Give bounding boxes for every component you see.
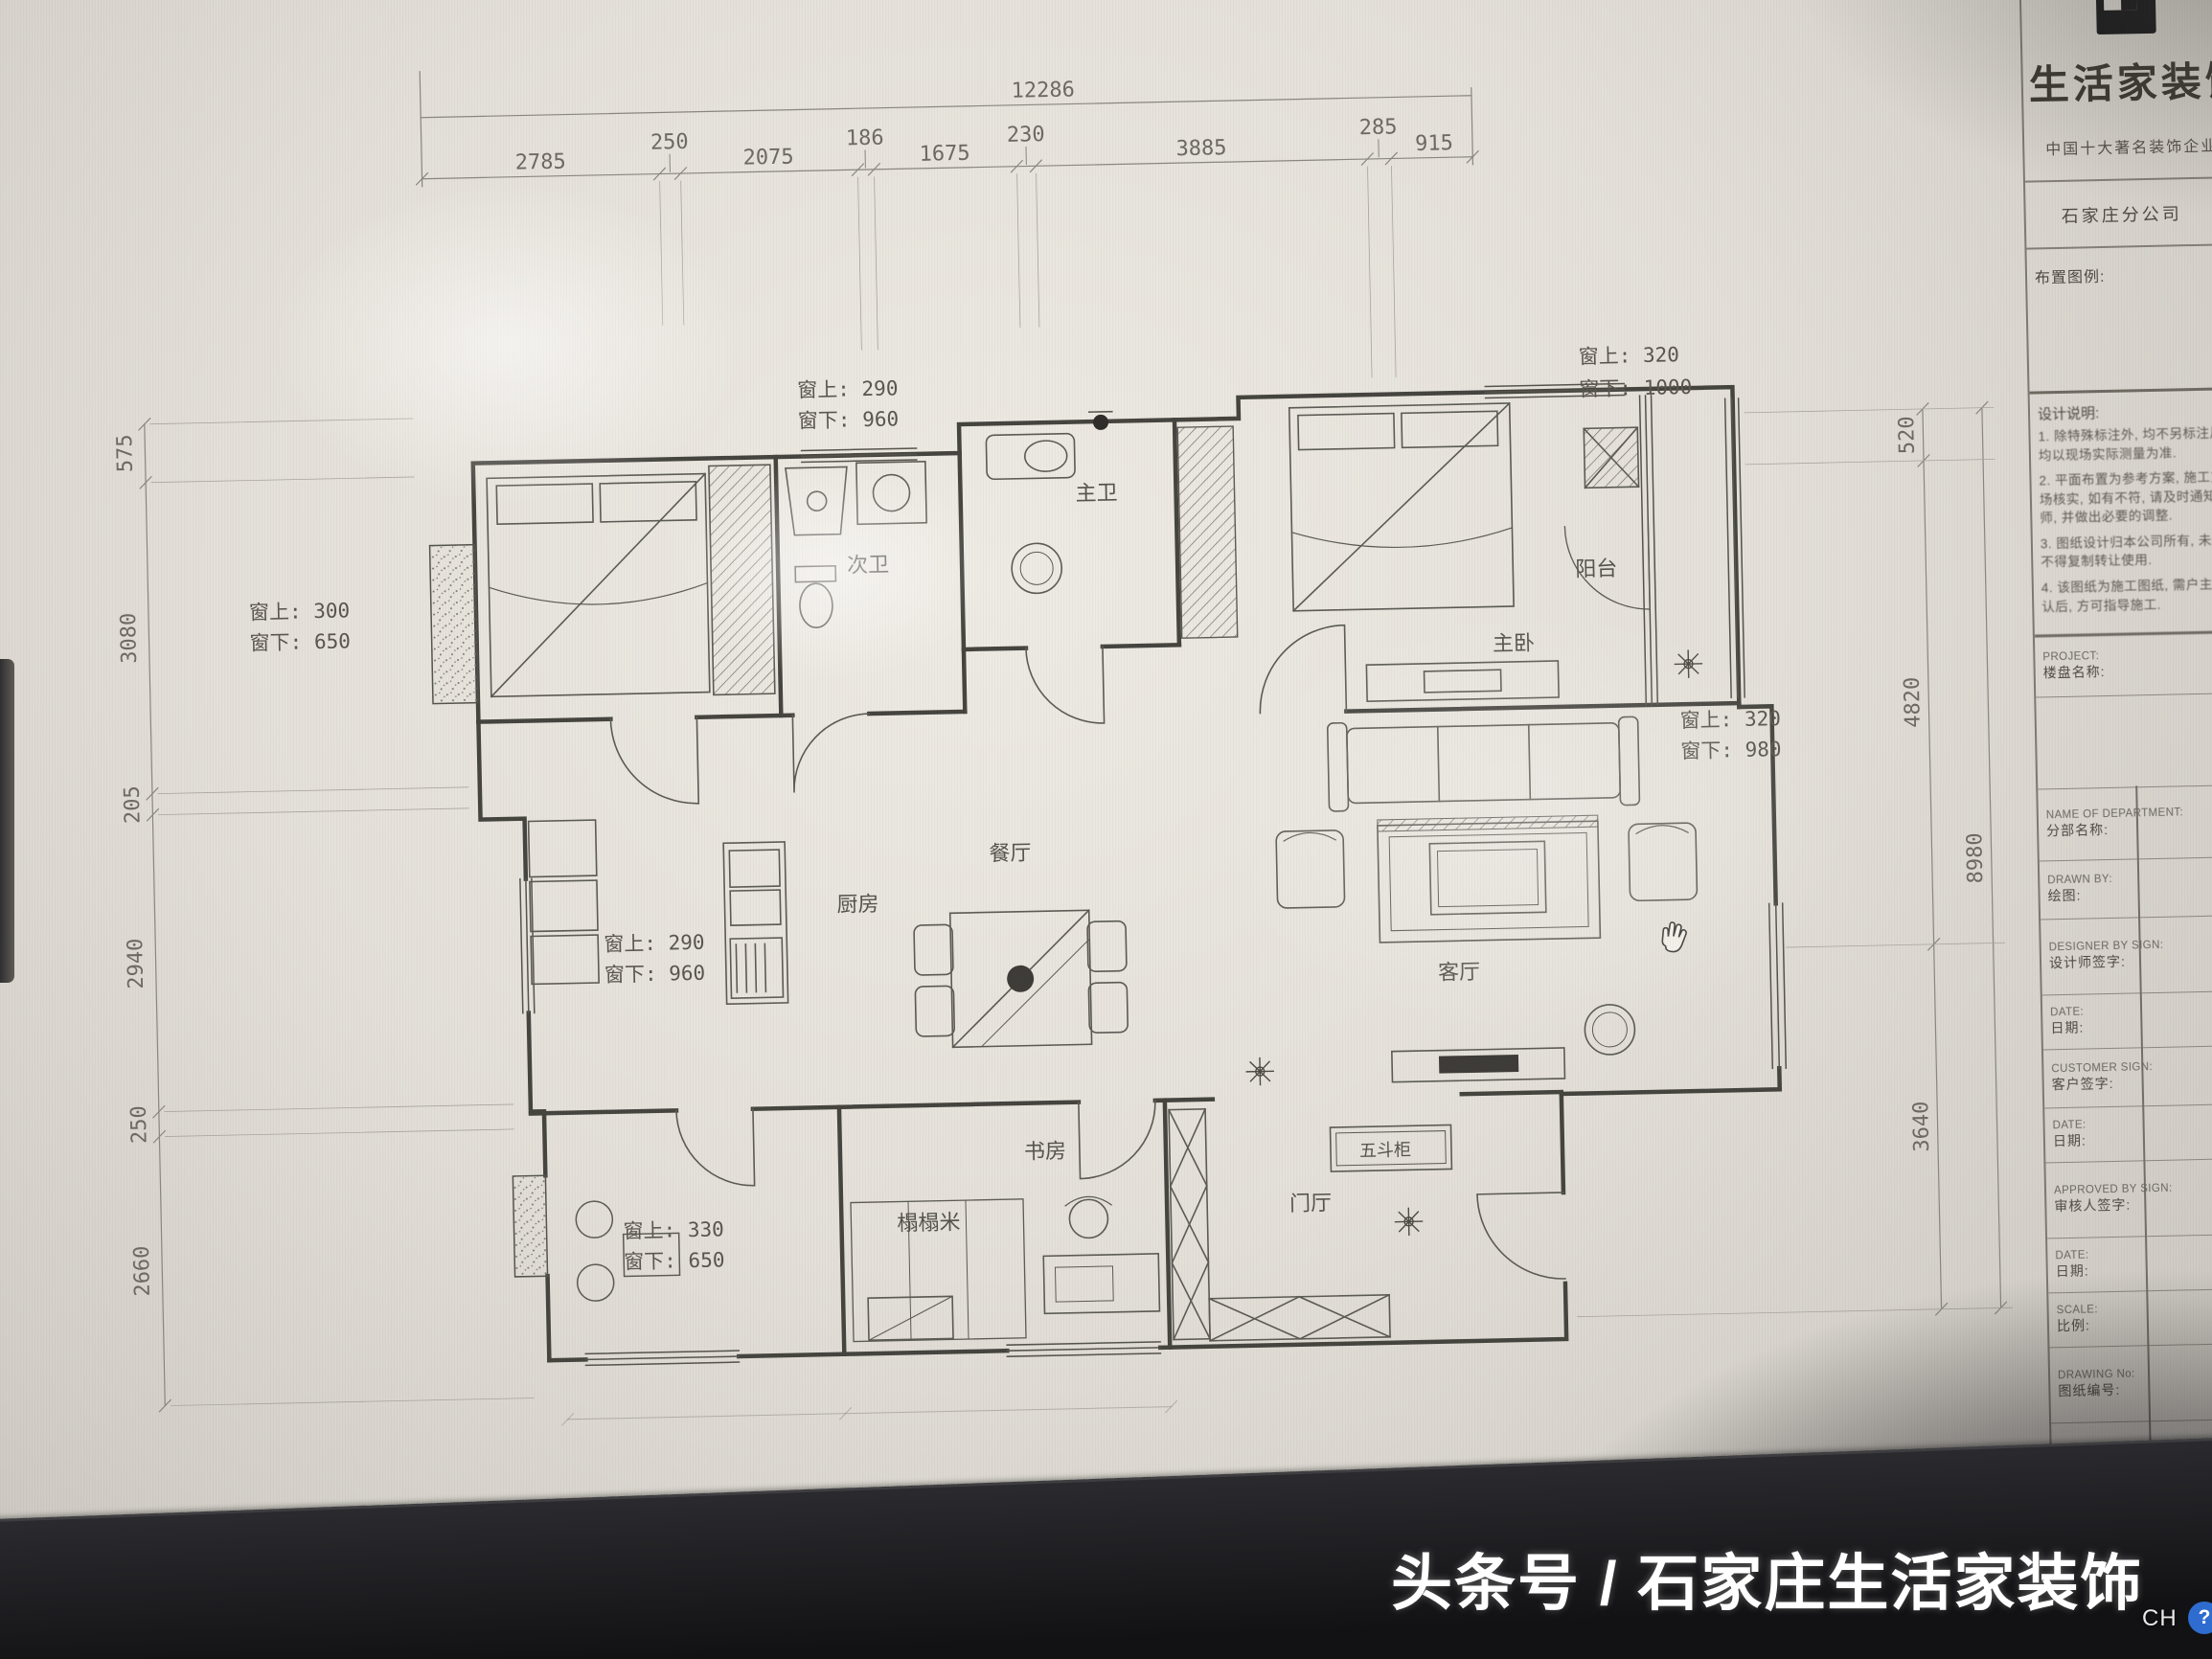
row-department: NAME OF DEPARTMENT: 分部名称: [2038,785,2212,862]
title-block: 生活家装饰 中国十大著名装饰企业 石家庄分公司 布置图例: 设计说明: 1. 除… [2018,0,2212,1579]
company-name: 生活家装饰 [2022,47,2212,122]
left-edge-object [0,659,14,983]
row-customer-sign: CUSTOMER SIGN: 客户签字: [2043,1046,2212,1109]
legend-label: 布置图例: [2026,245,2212,395]
branch-name: 石家庄分公司 [2025,178,2212,250]
row-approved-sign: APPROVED BY SIGN: 审核人签字: [2045,1158,2212,1239]
design-note: 3. 图纸设计归本公司所有, 未经许可, 不得复制转让使用. [2041,530,2212,572]
scene-tilt-layer: 生活家装饰 中国十大著名装饰企业 石家庄分公司 布置图例: 设计说明: 1. 除… [0,0,2212,1659]
row-empty [2036,693,2212,790]
company-logo [2020,0,2212,52]
design-notes-title: 设计说明: [2038,399,2212,424]
row-drawn-by: DRAWN BY: 绘图: [2040,857,2212,920]
design-note: 1. 除特殊标注外, 均不另标注尺寸, 均以现场实际测量为准. [2038,423,2212,466]
watermark-text: 头条号 / 石家庄生活家装饰 [1391,1534,2212,1623]
design-note: 2. 平面布置为参考方案, 施工方需现场核实, 如有不符, 请及时通知设计师, … [2039,467,2212,528]
row-project: PROJECT: 楼盘名称: [2035,633,2212,698]
title-block-rows: PROJECT: 楼盘名称: NAME OF DEPARTMENT: 分部名称:… [2035,633,2212,1424]
row-designer-sign: DESIGNER BY SIGN: 设计师签字: [2041,916,2212,996]
photo-of-monitor: 12286 2785 250 2075 186 1675 230 3885 28… [0,0,2212,1659]
row-scale: SCALE: 比例: [2048,1288,2212,1348]
row-date: DATE: 日期: [2042,991,2212,1051]
design-note: 4. 该图纸为施工图纸, 需户主签字确认后, 方可指导施工. [2041,575,2212,617]
company-tagline: 中国十大著名装饰企业 [2024,117,2212,183]
osd-channel-label: CH [2142,1605,2178,1632]
design-notes: 设计说明: 1. 除特殊标注外, 均不另标注尺寸, 均以现场实际测量为准. 2.… [2030,390,2212,638]
row-drawing-no: DRAWING No: 图纸编号: [2049,1343,2212,1423]
row-date: DATE: 日期: [2044,1103,2212,1163]
row-date: DATE: 日期: [2047,1234,2212,1293]
